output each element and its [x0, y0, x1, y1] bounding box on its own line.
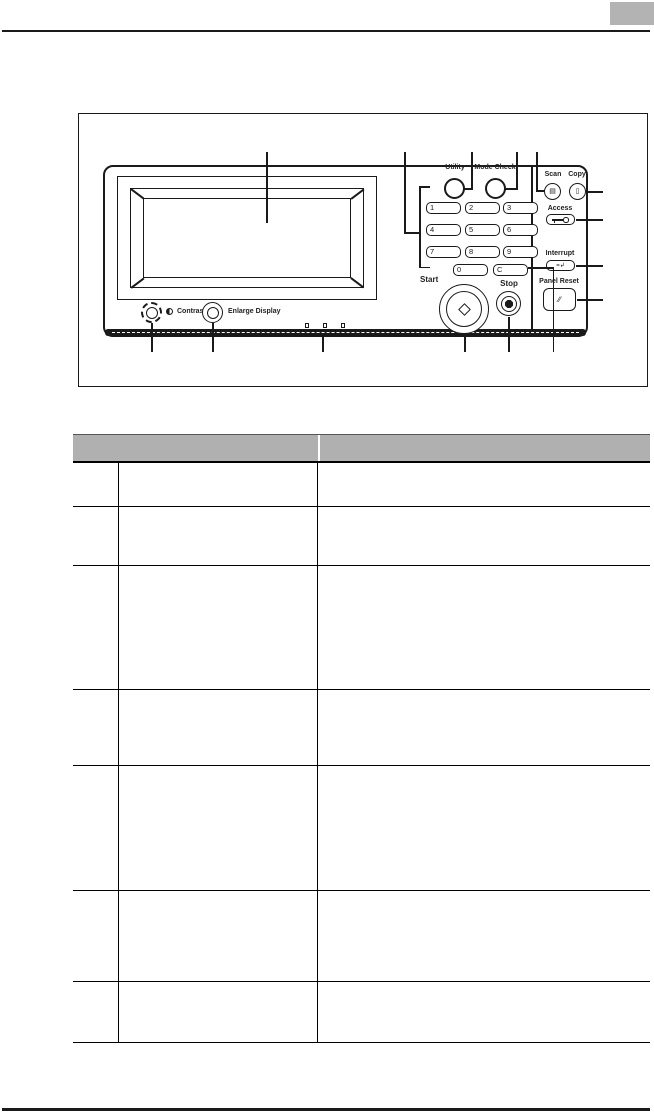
keypad-key-1: 1 [426, 202, 461, 214]
copy-button: ▯ [569, 183, 586, 200]
stop-icon [505, 300, 513, 308]
table-cell [318, 982, 650, 1042]
manual-page: Contrast Enlarge Display Utility Mode Ch… [0, 0, 654, 1118]
enlarge-display-button-inner [207, 307, 219, 319]
table-header-cell [73, 435, 119, 461]
table-cell [119, 507, 318, 565]
table-cell [119, 891, 318, 981]
keypad-key-7: 7 [426, 246, 461, 258]
interrupt-icon: =↲ [556, 263, 565, 269]
table-cell [119, 766, 318, 890]
callout-panel-reset [577, 299, 603, 301]
access-button [546, 214, 575, 225]
interrupt-label: Interrupt [542, 250, 578, 257]
callout-clear-key-h [528, 267, 554, 269]
copy-label: Copy [562, 171, 592, 178]
table-row [73, 766, 650, 891]
keypad-key-3: 3 [503, 202, 538, 214]
contrast-dial-inner [146, 307, 158, 319]
status-led-2 [323, 323, 327, 328]
callout-interrupt [576, 265, 603, 267]
table-cell [73, 891, 119, 981]
callout-display [266, 152, 268, 223]
panel-reset-icon: ∕∕ [558, 296, 561, 304]
table-row [73, 507, 650, 566]
keypad-key-clear: C [493, 264, 528, 276]
scan-button: ▤ [544, 183, 561, 200]
table-cell [119, 463, 318, 506]
stop-label: Stop [494, 279, 524, 288]
corner-tab [610, 2, 654, 25]
keypad-key-0: 0 [453, 264, 488, 276]
keypad-key-4: 4 [426, 224, 461, 236]
table-row [73, 566, 650, 690]
keypad-bracket-tick-top [419, 186, 430, 188]
panel-reset-label: Panel Reset [536, 278, 582, 285]
table-row [73, 690, 650, 766]
table-cell [318, 566, 650, 689]
table-row [73, 891, 650, 982]
table-cell [73, 690, 119, 765]
access-label: Access [545, 205, 575, 212]
callout-stop [508, 317, 510, 352]
start-label: Start [420, 275, 438, 284]
table-cell [318, 507, 650, 565]
table-cell [73, 766, 119, 890]
table-cell [119, 690, 318, 765]
enlarge-display-label: Enlarge Display [228, 308, 281, 315]
status-led-1 [305, 323, 309, 328]
header-rule [2, 30, 650, 32]
copy-icon: ▯ [576, 188, 580, 195]
table-cell [73, 982, 119, 1042]
table-header-cell [318, 435, 650, 461]
table-cell [73, 463, 119, 506]
callout-keypad-h [404, 232, 420, 234]
table-row [73, 463, 650, 507]
table-cell [73, 507, 119, 565]
keypad-key-5: 5 [465, 224, 500, 236]
table-cell [318, 463, 650, 506]
mode-check-button [485, 178, 506, 199]
table-cell [119, 982, 318, 1042]
callout-scan-v [536, 152, 538, 191]
callout-utility-v [471, 152, 473, 189]
callout-enlarge-display [212, 323, 214, 352]
keypad-key-6: 6 [503, 224, 538, 236]
panel-reset-button: ∕∕ [543, 288, 576, 311]
footer-rule [2, 1108, 650, 1111]
table-cell [318, 891, 650, 981]
table-header-cell [119, 435, 318, 461]
callout-scan-h [536, 190, 545, 192]
table-cell [318, 766, 650, 890]
callout-utility-h [464, 188, 473, 190]
parts-table [73, 434, 650, 1043]
table-cell [73, 566, 119, 689]
key-icon [552, 217, 569, 223]
callout-start [464, 334, 466, 352]
keypad-bracket-v [419, 186, 421, 268]
display-screen [143, 198, 351, 278]
callout-access [576, 219, 603, 221]
header-column-gap [318, 435, 320, 461]
status-led-3 [341, 323, 345, 328]
interrupt-button: =↲ [546, 260, 575, 271]
contrast-icon [166, 308, 173, 315]
keypad-bracket-tick-bottom [419, 267, 430, 269]
callout-copy [588, 191, 603, 193]
callout-clear-key-v [553, 267, 555, 352]
callout-mode-check-h [505, 188, 518, 190]
table-cell [119, 566, 318, 689]
utility-button [444, 178, 465, 199]
table-cell [318, 690, 650, 765]
callout-keypad-v [404, 152, 406, 233]
callout-contrast [151, 323, 153, 352]
callout-mode-check-v [516, 152, 518, 189]
scan-icon: ▤ [549, 188, 556, 195]
table-row [73, 982, 650, 1043]
parts-table-header [73, 434, 650, 463]
keypad-key-8: 8 [465, 246, 500, 258]
keypad-key-9: 9 [503, 246, 538, 258]
callout-leds [322, 334, 324, 352]
keypad-key-2: 2 [465, 202, 500, 214]
